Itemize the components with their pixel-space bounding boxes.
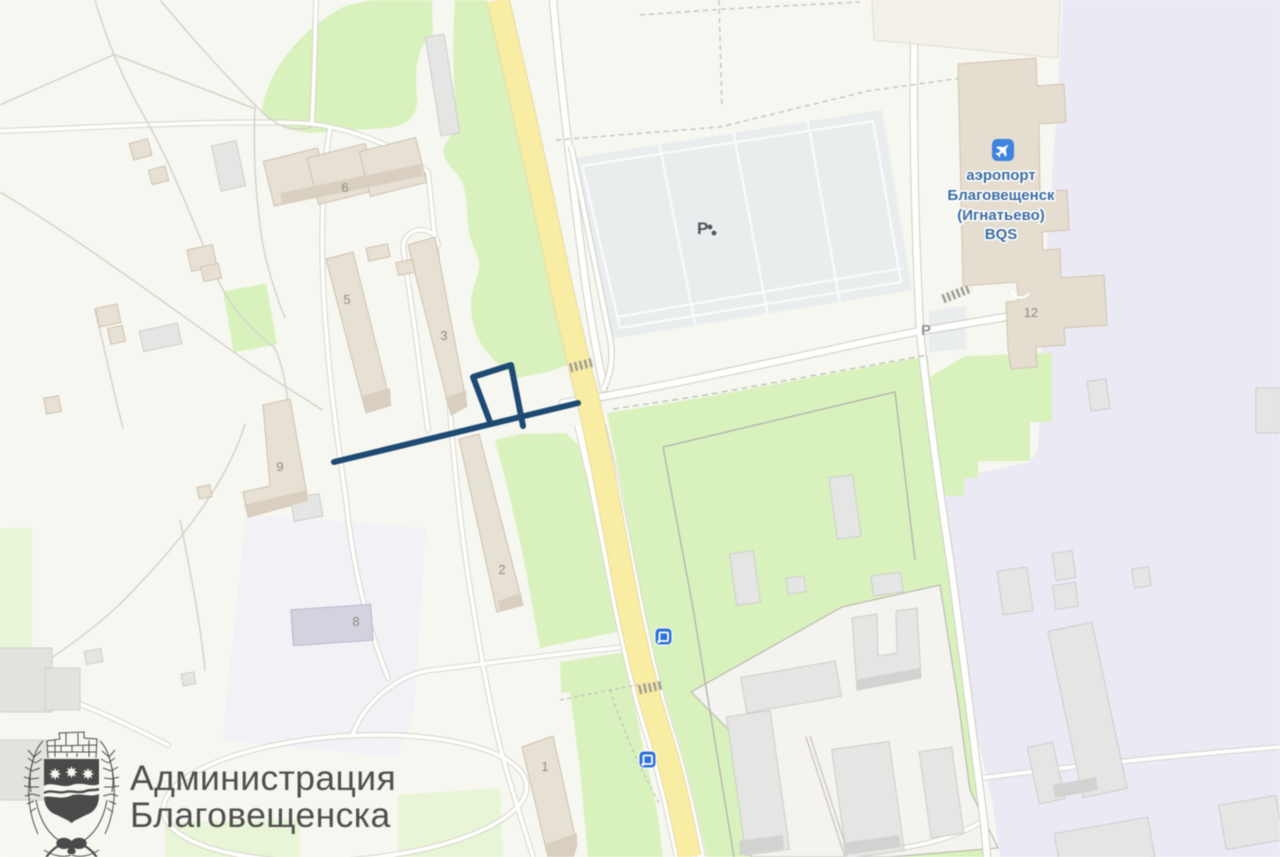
svg-text:8: 8 bbox=[352, 614, 359, 629]
svg-text:3: 3 bbox=[440, 328, 447, 343]
svg-text:Благовещенска: Благовещенска bbox=[130, 795, 391, 835]
svg-text:Администрация: Администрация bbox=[130, 758, 396, 798]
svg-text:P: P bbox=[921, 322, 931, 339]
svg-text:(Игнатьево): (Игнатьево) bbox=[957, 207, 1045, 224]
svg-text:2: 2 bbox=[498, 562, 505, 577]
svg-text:6: 6 bbox=[341, 180, 348, 195]
svg-text:12: 12 bbox=[1024, 305, 1038, 320]
svg-text:Благовещенск: Благовещенск bbox=[947, 187, 1055, 204]
svg-text:9: 9 bbox=[276, 459, 283, 474]
svg-text:1: 1 bbox=[541, 759, 548, 774]
svg-text:аэропорт: аэропорт bbox=[966, 167, 1036, 184]
svg-text:5: 5 bbox=[343, 292, 350, 307]
svg-text:P: P bbox=[697, 219, 708, 238]
svg-text:BQS: BQS bbox=[985, 226, 1018, 243]
